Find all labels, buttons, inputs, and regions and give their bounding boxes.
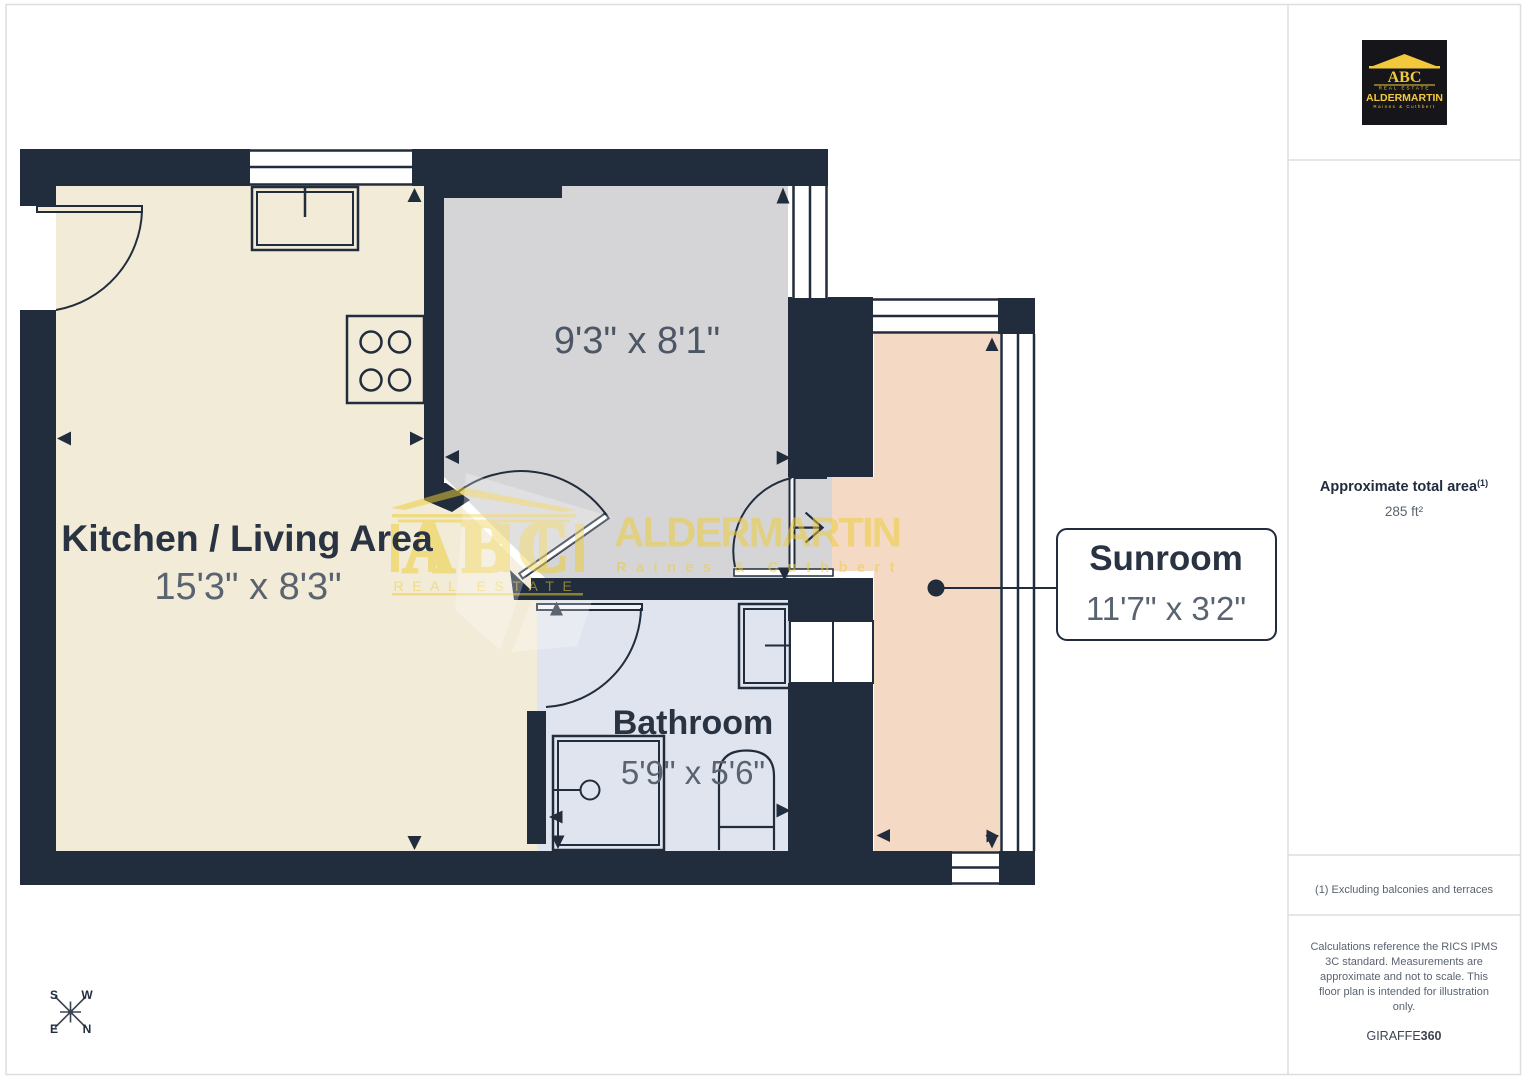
svg-text:(1) Excluding balconies and te: (1) Excluding balconies and terraces <box>1315 884 1493 896</box>
svg-text:11'7" x 3'2": 11'7" x 3'2" <box>1086 590 1246 627</box>
svg-text:ALDERMARTIN: ALDERMARTIN <box>614 509 900 556</box>
svg-text:3C standard. Measurements are: 3C standard. Measurements are <box>1325 956 1483 968</box>
svg-text:5'9" x 5'6": 5'9" x 5'6" <box>621 754 765 791</box>
svg-text:S: S <box>50 988 58 1002</box>
svg-text:Calculations reference the RIC: Calculations reference the RICS IPMS <box>1310 941 1497 953</box>
svg-text:GIRAFFE360: GIRAFFE360 <box>1366 1029 1441 1043</box>
svg-text:floor plan is intended for ill: floor plan is intended for illustration <box>1319 986 1489 998</box>
svg-text:15'3" x 8'3": 15'3" x 8'3" <box>154 566 341 608</box>
svg-text:Approximate total area(1): Approximate total area(1) <box>1320 478 1488 495</box>
svg-text:ABC: ABC <box>1388 69 1422 86</box>
svg-text:N: N <box>83 1022 92 1036</box>
svg-text:only.: only. <box>1393 1001 1415 1013</box>
svg-text:Kitchen / Living Area: Kitchen / Living Area <box>61 517 434 559</box>
svg-text:9'3" x 8'1": 9'3" x 8'1" <box>554 320 720 362</box>
svg-text:E: E <box>50 1022 58 1036</box>
svg-text:Sunroom: Sunroom <box>1089 539 1243 578</box>
svg-text:W: W <box>81 988 93 1002</box>
svg-text:REAL ESTATE: REAL ESTATE <box>1379 86 1431 91</box>
svg-text:ALDERMARTIN: ALDERMARTIN <box>1366 92 1443 104</box>
svg-text:Raines & Cuthbert: Raines & Cuthbert <box>616 560 904 576</box>
svg-text:Bathroom: Bathroom <box>613 704 774 742</box>
svg-text:285 ft²: 285 ft² <box>1385 504 1424 519</box>
svg-text:approximate and not to scale.: approximate and not to scale. This <box>1320 971 1488 983</box>
svg-text:Raines & Cuthbert: Raines & Cuthbert <box>1373 104 1435 109</box>
